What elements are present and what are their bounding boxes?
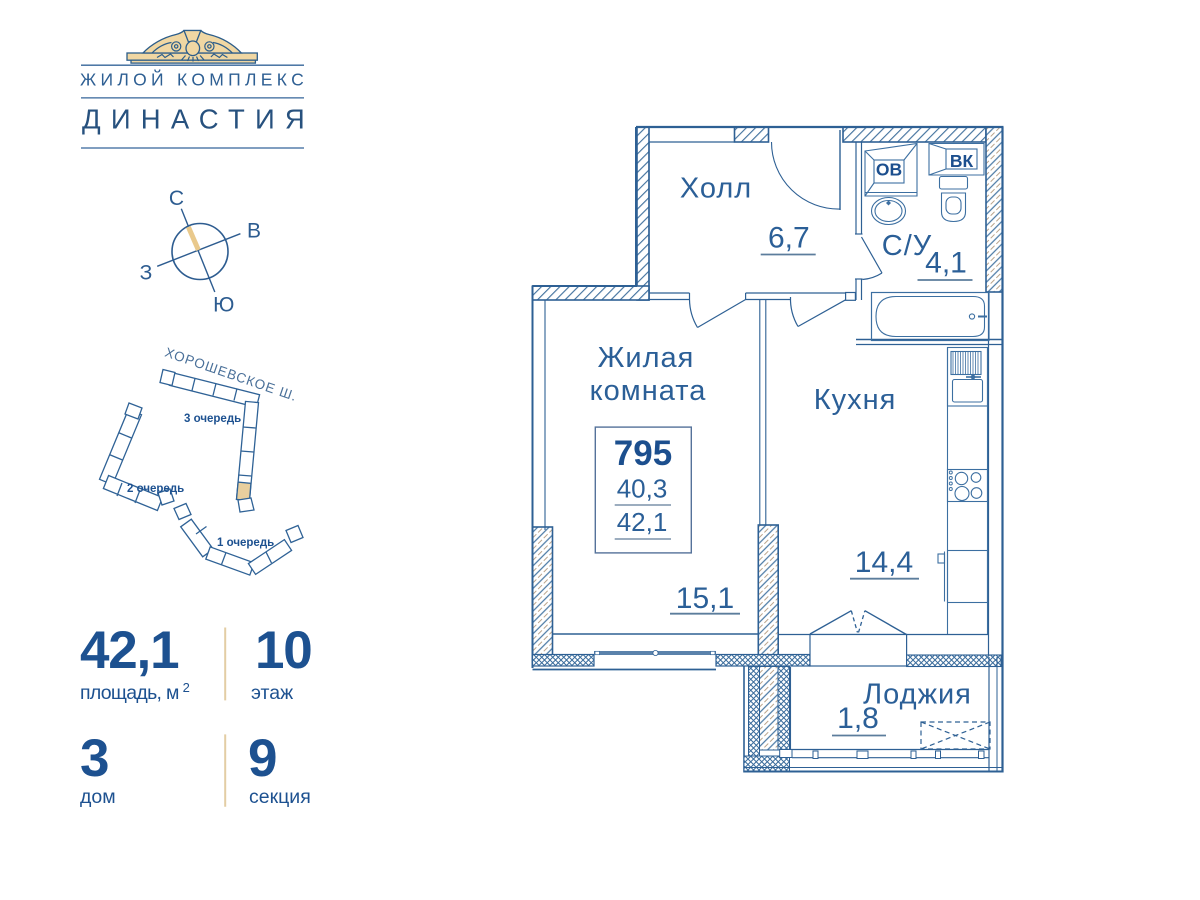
svg-text:40,3: 40,3: [617, 473, 668, 503]
svg-text:площадь, м2: площадь, м2: [80, 680, 190, 704]
svg-text:795: 795: [614, 434, 672, 473]
svg-text:ДИНАСТИЯ: ДИНАСТИЯ: [82, 103, 315, 134]
svg-text:Ю: Ю: [213, 293, 234, 316]
svg-text:1 очередь: 1 очередь: [217, 537, 274, 549]
svg-text:6,7: 6,7: [768, 222, 810, 255]
svg-text:этаж: этаж: [251, 682, 293, 704]
svg-text:3 очередь: 3 очередь: [184, 413, 241, 425]
svg-text:ВК: ВК: [950, 151, 974, 171]
svg-text:42,1: 42,1: [80, 621, 178, 680]
svg-text:ОВ: ОВ: [876, 160, 902, 180]
svg-text:9: 9: [248, 729, 277, 788]
svg-text:дом: дом: [80, 786, 116, 808]
svg-text:2 очередь: 2 очередь: [127, 483, 184, 495]
svg-text:42,1: 42,1: [617, 507, 668, 537]
svg-text:14,4: 14,4: [855, 546, 913, 579]
svg-text:Жилая: Жилая: [598, 342, 695, 374]
svg-text:комната: комната: [590, 375, 707, 407]
svg-text:15,1: 15,1: [676, 582, 734, 615]
svg-text:3: 3: [80, 729, 109, 788]
svg-text:З: З: [140, 262, 153, 285]
svg-text:Холл: Холл: [680, 173, 752, 205]
svg-text:ЖИЛОЙ КОМПЛЕКС: ЖИЛОЙ КОМПЛЕКС: [80, 69, 308, 90]
svg-text:С: С: [169, 187, 184, 210]
svg-text:В: В: [247, 220, 261, 243]
svg-text:Лоджия: Лоджия: [863, 679, 972, 711]
svg-text:секция: секция: [249, 786, 311, 808]
svg-text:1,8: 1,8: [837, 702, 879, 735]
svg-text:4,1: 4,1: [925, 247, 967, 280]
svg-text:Кухня: Кухня: [814, 384, 897, 416]
svg-text:10: 10: [255, 621, 312, 680]
